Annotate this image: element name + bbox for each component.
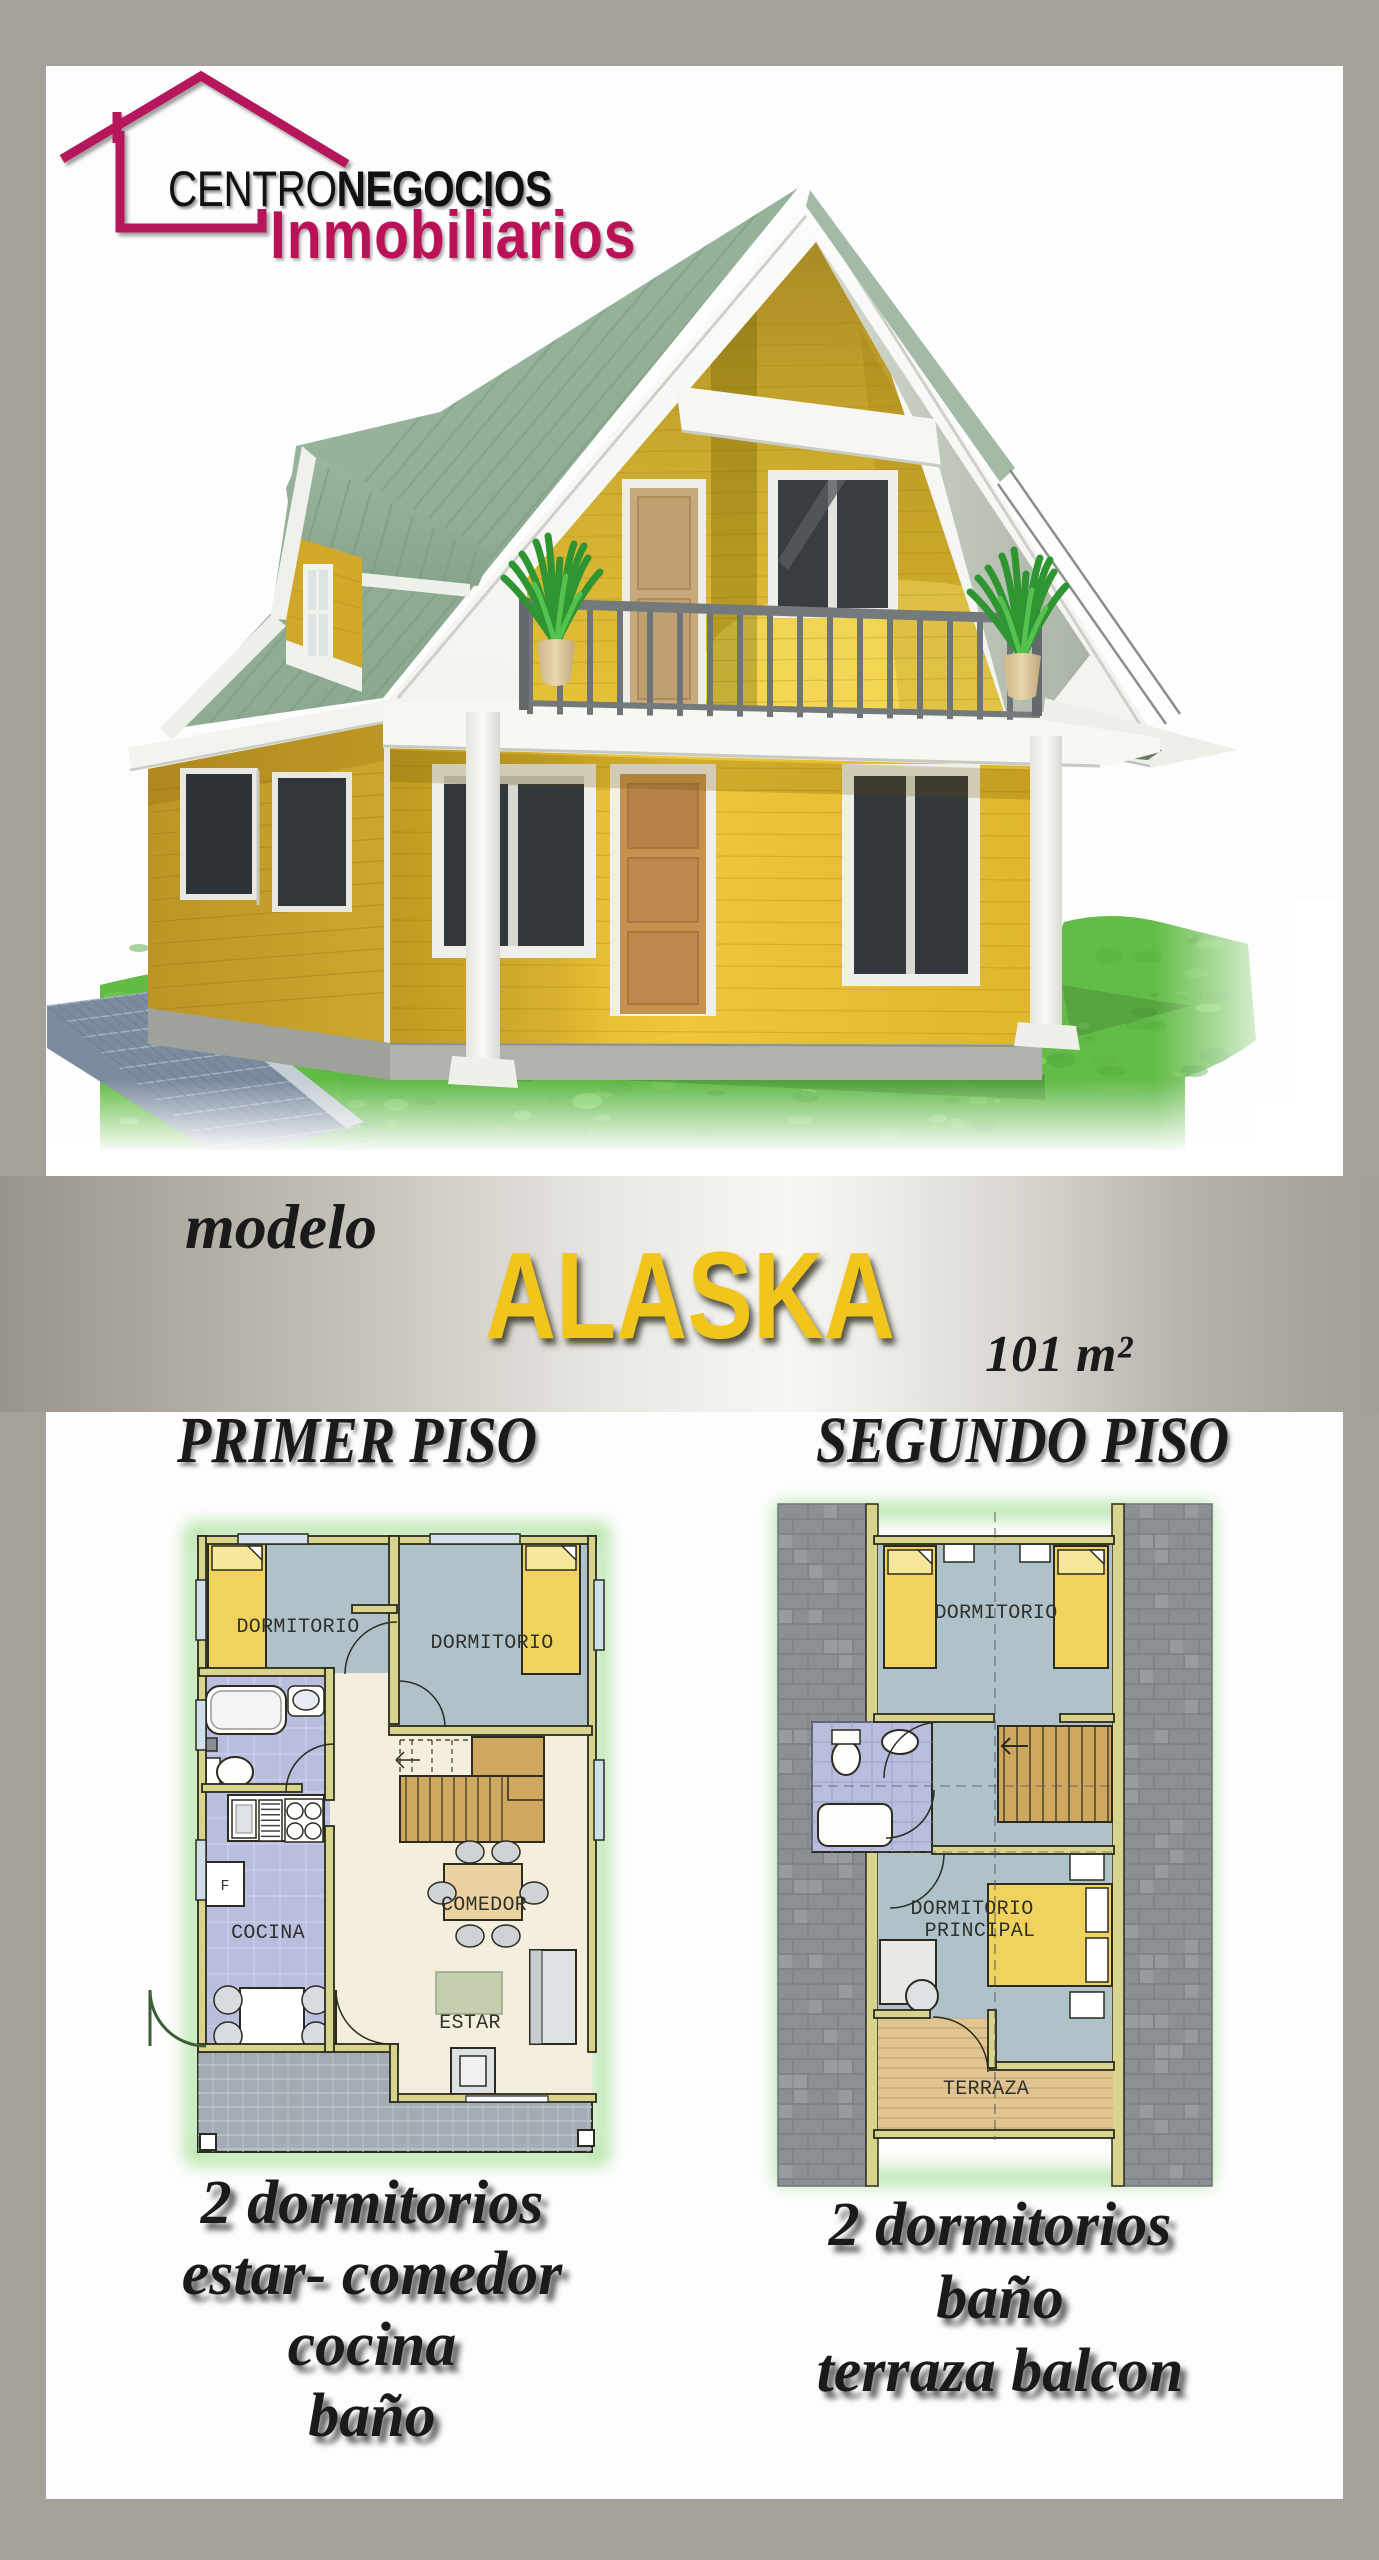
svg-text:PRINCIPAL: PRINCIPAL: [925, 1920, 1036, 1943]
svg-text:DORMITORIO: DORMITORIO: [910, 1898, 1033, 1921]
svg-text:ESTAR: ESTAR: [439, 2012, 501, 2035]
svg-text:COCINA: COCINA: [231, 1922, 305, 1945]
svg-text:DORMITORIO: DORMITORIO: [430, 1632, 553, 1655]
svg-text:DORMITORIO: DORMITORIO: [934, 1602, 1057, 1625]
svg-text:F: F: [220, 1878, 229, 1895]
svg-text:TERRAZA: TERRAZA: [943, 2078, 1029, 2101]
svg-text:DORMITORIO: DORMITORIO: [236, 1616, 359, 1639]
svg-text:COMEDOR: COMEDOR: [441, 1894, 527, 1917]
